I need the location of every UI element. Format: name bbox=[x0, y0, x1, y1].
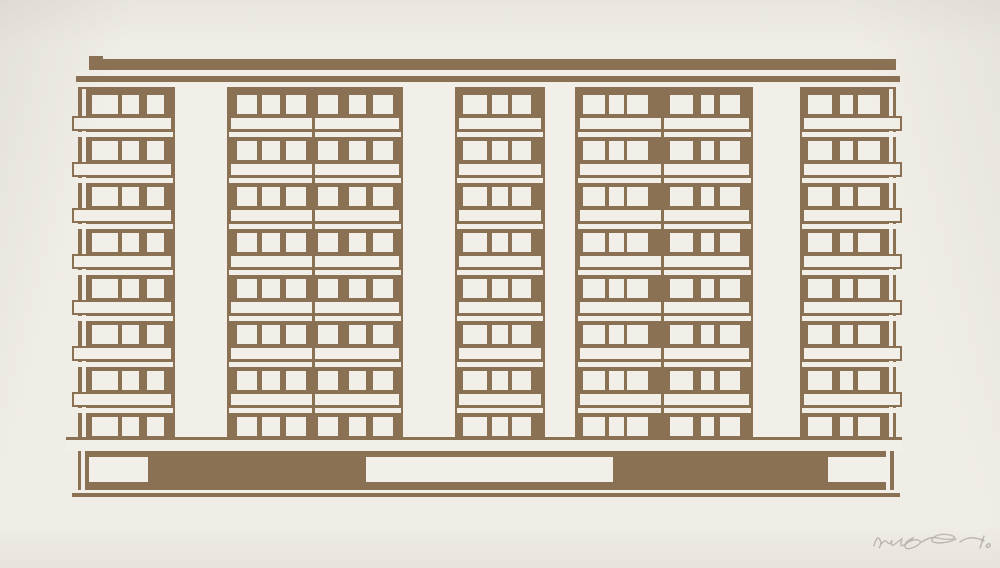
base-end-slit bbox=[81, 451, 85, 490]
window bbox=[840, 187, 853, 206]
window bbox=[583, 371, 605, 390]
window bbox=[122, 279, 139, 298]
window bbox=[609, 95, 624, 114]
balcony-band bbox=[457, 116, 543, 131]
floor-slab-strip bbox=[578, 362, 751, 367]
balcony-band bbox=[72, 254, 173, 269]
window bbox=[349, 371, 366, 390]
window bbox=[122, 187, 139, 206]
balcony-band bbox=[578, 116, 751, 131]
window bbox=[512, 141, 531, 160]
window bbox=[583, 141, 605, 160]
window bbox=[463, 233, 487, 252]
floor-slab-strip bbox=[78, 408, 173, 413]
balcony-band bbox=[802, 116, 902, 131]
window bbox=[609, 279, 624, 298]
floor-slab-strip bbox=[78, 316, 173, 321]
window bbox=[349, 233, 366, 252]
window bbox=[701, 279, 714, 298]
floor-slab-strip bbox=[457, 178, 543, 183]
window bbox=[609, 187, 624, 206]
window bbox=[286, 95, 306, 114]
window bbox=[373, 95, 393, 114]
window bbox=[318, 233, 338, 252]
window bbox=[262, 325, 280, 344]
window bbox=[583, 95, 605, 114]
window bbox=[609, 141, 624, 160]
window bbox=[701, 325, 714, 344]
window bbox=[318, 325, 338, 344]
window bbox=[512, 187, 531, 206]
window bbox=[808, 233, 832, 252]
window bbox=[512, 325, 531, 344]
artist-signature bbox=[860, 520, 1000, 560]
balcony-band bbox=[457, 254, 543, 269]
window bbox=[701, 371, 714, 390]
balcony-band bbox=[802, 392, 902, 407]
ground-floor-opening bbox=[828, 457, 887, 482]
balcony-band bbox=[457, 208, 543, 223]
balcony-band bbox=[578, 208, 751, 223]
window bbox=[627, 233, 648, 252]
window bbox=[237, 141, 257, 160]
window bbox=[237, 325, 257, 344]
floor-slab-strip bbox=[229, 316, 401, 321]
window bbox=[262, 233, 280, 252]
window bbox=[808, 325, 832, 344]
window bbox=[122, 233, 139, 252]
window bbox=[670, 417, 693, 436]
window bbox=[583, 325, 605, 344]
roof-slab-bar bbox=[89, 59, 894, 70]
window bbox=[670, 233, 693, 252]
window bbox=[92, 187, 118, 206]
window bbox=[808, 141, 832, 160]
window bbox=[512, 417, 531, 436]
window bbox=[147, 233, 164, 252]
window bbox=[237, 417, 257, 436]
ground-line bbox=[72, 493, 900, 497]
ground-floor-opening bbox=[366, 457, 613, 482]
window bbox=[670, 371, 693, 390]
window bbox=[492, 279, 508, 298]
window bbox=[286, 325, 306, 344]
balcony-band bbox=[229, 346, 401, 361]
window bbox=[858, 371, 880, 390]
window bbox=[670, 279, 693, 298]
window bbox=[670, 141, 693, 160]
window bbox=[492, 187, 508, 206]
window bbox=[373, 141, 393, 160]
window bbox=[262, 279, 280, 298]
balcony-band bbox=[229, 162, 401, 177]
window bbox=[147, 325, 164, 344]
window bbox=[122, 417, 139, 436]
floor-slab-strip bbox=[78, 362, 173, 367]
floor-slab-strip bbox=[78, 132, 173, 137]
floor-slab-strip bbox=[578, 408, 751, 413]
window bbox=[92, 279, 118, 298]
balcony-band bbox=[578, 162, 751, 177]
balcony-band bbox=[578, 300, 751, 315]
window bbox=[122, 95, 139, 114]
window bbox=[237, 233, 257, 252]
window bbox=[122, 141, 139, 160]
floor-slab-strip bbox=[78, 178, 173, 183]
balcony-band bbox=[802, 300, 902, 315]
window bbox=[808, 371, 832, 390]
window bbox=[349, 417, 366, 436]
window bbox=[609, 417, 624, 436]
window bbox=[122, 371, 139, 390]
floor-slab-strip bbox=[229, 178, 401, 183]
window bbox=[720, 187, 740, 206]
section-divider-line bbox=[661, 87, 664, 437]
window bbox=[147, 95, 164, 114]
window bbox=[492, 417, 508, 436]
window bbox=[147, 141, 164, 160]
window bbox=[701, 95, 714, 114]
window bbox=[858, 141, 880, 160]
window bbox=[627, 279, 648, 298]
balcony-band bbox=[578, 392, 751, 407]
window bbox=[627, 325, 648, 344]
floor-slab-strip bbox=[802, 316, 896, 321]
stairwell-column bbox=[753, 87, 800, 437]
window bbox=[463, 95, 487, 114]
window bbox=[720, 233, 740, 252]
window bbox=[349, 187, 366, 206]
window bbox=[512, 233, 531, 252]
window bbox=[492, 141, 508, 160]
floor-slab-strip bbox=[457, 316, 543, 321]
window bbox=[858, 233, 880, 252]
window bbox=[492, 233, 508, 252]
window bbox=[373, 325, 393, 344]
stairwell-column bbox=[545, 87, 575, 437]
floor-slab-strip bbox=[229, 362, 401, 367]
ground-floor-opening bbox=[89, 457, 148, 482]
floor-slab-strip bbox=[78, 270, 173, 275]
window bbox=[720, 279, 740, 298]
paper-background bbox=[0, 0, 1000, 568]
floor-slab-strip bbox=[229, 224, 401, 229]
window bbox=[92, 325, 118, 344]
window bbox=[463, 417, 487, 436]
window bbox=[286, 141, 306, 160]
window bbox=[670, 187, 693, 206]
window bbox=[262, 371, 280, 390]
window bbox=[512, 371, 531, 390]
window bbox=[349, 141, 366, 160]
stairwell-column bbox=[175, 87, 227, 437]
window bbox=[286, 279, 306, 298]
balcony-band bbox=[72, 346, 173, 361]
window bbox=[858, 95, 880, 114]
floor-slab-strip bbox=[578, 316, 751, 321]
floor-slab-strip bbox=[457, 362, 543, 367]
window bbox=[262, 95, 280, 114]
window bbox=[627, 371, 648, 390]
balcony-band bbox=[229, 254, 401, 269]
window bbox=[463, 279, 487, 298]
window bbox=[318, 187, 338, 206]
window bbox=[373, 233, 393, 252]
window bbox=[349, 95, 366, 114]
window bbox=[92, 233, 118, 252]
floor-slab-strip bbox=[229, 408, 401, 413]
window bbox=[318, 417, 338, 436]
window bbox=[286, 187, 306, 206]
floor-slab-strip bbox=[802, 132, 896, 137]
window bbox=[627, 95, 648, 114]
window bbox=[92, 417, 118, 436]
window bbox=[373, 279, 393, 298]
floor-slab-strip bbox=[457, 132, 543, 137]
balcony-band bbox=[72, 300, 173, 315]
window bbox=[147, 279, 164, 298]
window bbox=[840, 141, 853, 160]
window bbox=[858, 187, 880, 206]
window bbox=[808, 417, 832, 436]
window bbox=[720, 371, 740, 390]
floor-slab-strip bbox=[578, 132, 751, 137]
floor-slab-strip bbox=[802, 224, 896, 229]
floor-slab-strip bbox=[229, 132, 401, 137]
window bbox=[701, 187, 714, 206]
window bbox=[237, 371, 257, 390]
floor-slab-strip bbox=[578, 270, 751, 275]
window bbox=[512, 279, 531, 298]
window bbox=[373, 371, 393, 390]
window bbox=[840, 325, 853, 344]
balcony-band bbox=[457, 162, 543, 177]
window bbox=[583, 233, 605, 252]
window bbox=[262, 417, 280, 436]
floor-slab-strip bbox=[802, 270, 896, 275]
window bbox=[720, 141, 740, 160]
balcony-band bbox=[457, 300, 543, 315]
building-print bbox=[0, 0, 1000, 568]
window bbox=[583, 417, 605, 436]
window bbox=[670, 325, 693, 344]
window bbox=[262, 141, 280, 160]
window bbox=[492, 371, 508, 390]
stairwell-column bbox=[403, 87, 455, 437]
balcony-band bbox=[229, 300, 401, 315]
window bbox=[318, 371, 338, 390]
window bbox=[122, 325, 139, 344]
window bbox=[701, 233, 714, 252]
window bbox=[147, 187, 164, 206]
window bbox=[318, 141, 338, 160]
section-divider-line bbox=[312, 87, 315, 437]
window bbox=[627, 141, 648, 160]
window bbox=[627, 417, 648, 436]
window bbox=[349, 279, 366, 298]
window bbox=[808, 95, 832, 114]
window bbox=[318, 279, 338, 298]
base-end-slit bbox=[886, 451, 890, 490]
balcony-band bbox=[578, 254, 751, 269]
balcony-band bbox=[578, 346, 751, 361]
balcony-band bbox=[802, 162, 902, 177]
window bbox=[720, 95, 740, 114]
window bbox=[492, 95, 508, 114]
window bbox=[609, 325, 624, 344]
floor-slab-strip bbox=[802, 362, 896, 367]
window bbox=[286, 233, 306, 252]
balcony-band bbox=[457, 392, 543, 407]
window bbox=[858, 417, 880, 436]
window bbox=[720, 325, 740, 344]
floor-slab-strip bbox=[78, 224, 173, 229]
floor-slab-strip bbox=[457, 224, 543, 229]
window bbox=[583, 187, 605, 206]
balcony-band bbox=[802, 208, 902, 223]
window bbox=[92, 141, 118, 160]
balcony-band bbox=[72, 392, 173, 407]
window bbox=[237, 95, 257, 114]
ground-slab bbox=[66, 437, 902, 451]
window bbox=[512, 95, 531, 114]
window bbox=[858, 325, 880, 344]
window bbox=[840, 279, 853, 298]
floor-slab-strip bbox=[229, 270, 401, 275]
window bbox=[627, 187, 648, 206]
balcony-band bbox=[802, 254, 902, 269]
window bbox=[463, 187, 487, 206]
window bbox=[147, 417, 164, 436]
window bbox=[237, 279, 257, 298]
balcony-band bbox=[229, 116, 401, 131]
window bbox=[318, 95, 338, 114]
floor-slab-strip bbox=[457, 270, 543, 275]
window bbox=[262, 187, 280, 206]
window bbox=[463, 141, 487, 160]
window bbox=[670, 95, 693, 114]
window bbox=[492, 325, 508, 344]
window bbox=[609, 371, 624, 390]
window bbox=[373, 187, 393, 206]
window bbox=[237, 187, 257, 206]
balcony-band bbox=[802, 346, 902, 361]
window bbox=[147, 371, 164, 390]
window bbox=[463, 371, 487, 390]
balcony-band bbox=[229, 392, 401, 407]
floor-slab-strip bbox=[578, 224, 751, 229]
balcony-band bbox=[457, 346, 543, 361]
window bbox=[840, 233, 853, 252]
window bbox=[463, 325, 487, 344]
balcony-band bbox=[72, 208, 173, 223]
window bbox=[92, 371, 118, 390]
window bbox=[840, 417, 853, 436]
window bbox=[286, 371, 306, 390]
floor-slab-strip bbox=[457, 408, 543, 413]
window bbox=[858, 279, 880, 298]
window bbox=[840, 95, 853, 114]
balcony-band bbox=[72, 162, 173, 177]
window bbox=[286, 417, 306, 436]
floor-slab-strip bbox=[802, 178, 896, 183]
window bbox=[840, 371, 853, 390]
balcony-band bbox=[229, 208, 401, 223]
window bbox=[808, 279, 832, 298]
window bbox=[349, 325, 366, 344]
window bbox=[373, 417, 393, 436]
window bbox=[92, 95, 118, 114]
floor-slab-strip bbox=[802, 408, 896, 413]
window bbox=[701, 417, 714, 436]
floor-slab-strip bbox=[578, 178, 751, 183]
window bbox=[583, 279, 605, 298]
window bbox=[609, 233, 624, 252]
balcony-band bbox=[72, 116, 173, 131]
window bbox=[701, 141, 714, 160]
window bbox=[720, 417, 740, 436]
window bbox=[808, 187, 832, 206]
